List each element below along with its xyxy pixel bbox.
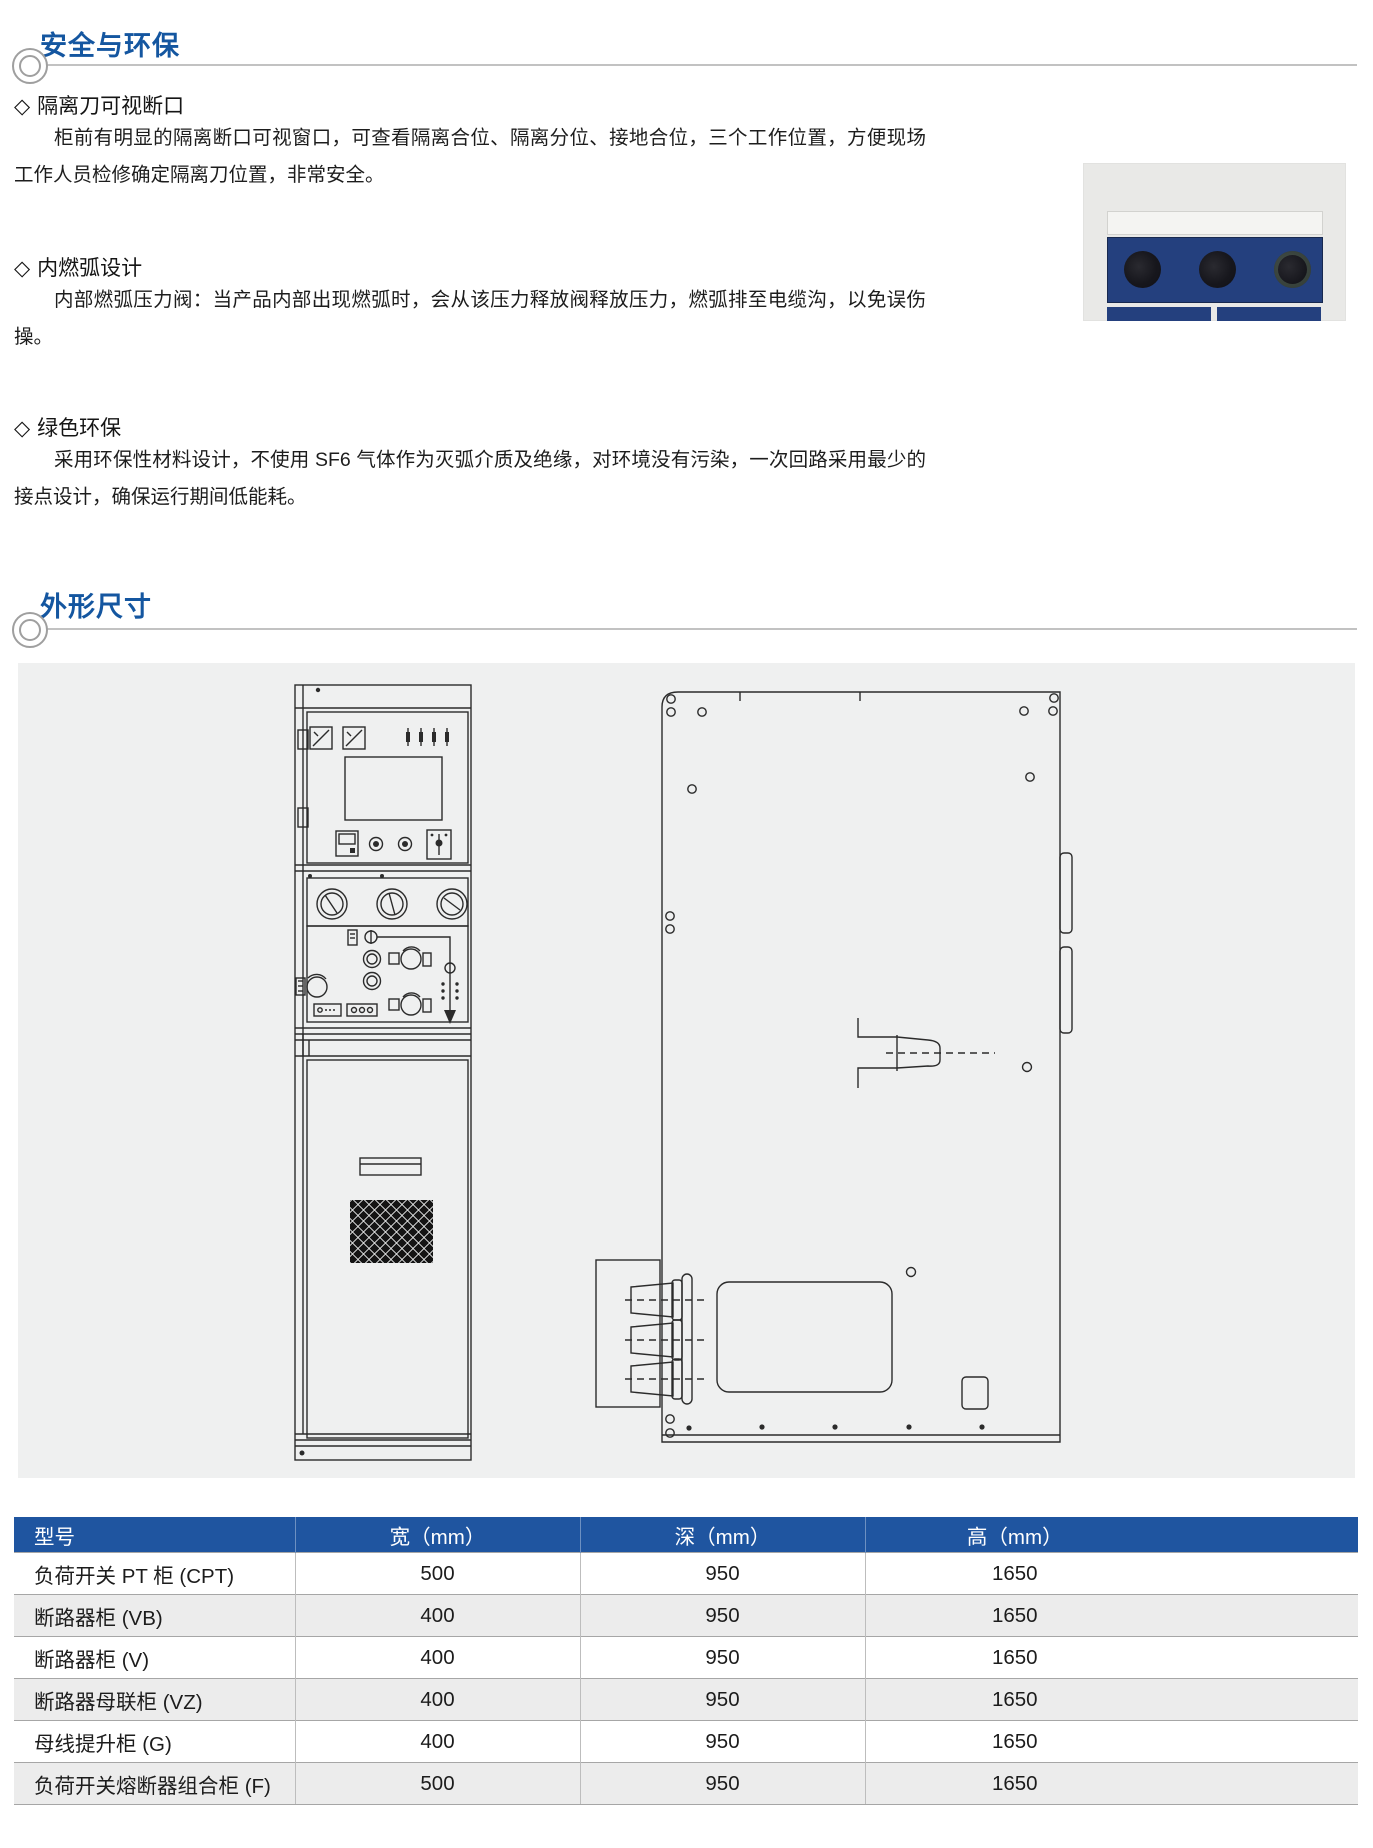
model-cell: 负荷开关 PT 柜 (CPT) (14, 1553, 295, 1595)
dimension-cell: 950 (580, 1763, 865, 1805)
photo-top-strip (1107, 211, 1323, 235)
dimension-cell: 1650 (865, 1637, 1358, 1679)
feature-heading-text: 绿色环保 (37, 417, 121, 440)
section-ring-icon (12, 48, 48, 84)
diamond-icon: ◇ (14, 257, 30, 280)
dimension-cell: 400 (295, 1637, 580, 1679)
feature-heading-text: 内燃弧设计 (37, 257, 142, 280)
feature-heading-arc: ◇内燃弧设计 (14, 252, 142, 282)
cabinet-side-view-drawing (590, 685, 1080, 1455)
table-row: 断路器母联柜 (VZ)4009501650 (14, 1679, 1358, 1721)
feature-body-arc: 内部燃弧压力阀：当产品内部出现燃弧时，会从该压力释放阀释放压力，燃弧排至电缆沟，… (14, 282, 926, 356)
table-row: 断路器柜 (VB)4009501650 (14, 1595, 1358, 1637)
dimension-cell: 950 (580, 1637, 865, 1679)
column-header: 深（mm） (580, 1517, 865, 1553)
diamond-icon: ◇ (14, 95, 30, 118)
dimension-cell: 500 (295, 1763, 580, 1805)
feature-heading-text: 隔离刀可视断口 (37, 95, 184, 118)
viewing-window-icon (1274, 251, 1311, 288)
table-row: 断路器柜 (V)4009501650 (14, 1637, 1358, 1679)
section-rule (28, 628, 1357, 630)
dimension-cell: 950 (580, 1679, 865, 1721)
dimension-cell: 400 (295, 1679, 580, 1721)
dimension-cell: 950 (580, 1595, 865, 1637)
product-photo (1083, 163, 1346, 321)
dimension-cell: 400 (295, 1595, 580, 1637)
section-title-safety: 安全与环保 (40, 24, 180, 63)
dimension-cell: 1650 (865, 1553, 1358, 1595)
column-header: 宽（mm） (295, 1517, 580, 1553)
page: { "ui": { "diamond": "◇" }, "sections": … (0, 0, 1373, 1848)
diamond-icon: ◇ (14, 417, 30, 440)
model-cell: 断路器柜 (VB) (14, 1595, 295, 1637)
size-table-header-row: 型号宽（mm）深（mm）高（mm） (14, 1517, 1358, 1553)
section-ring-icon (12, 612, 48, 648)
dimension-cell: 1650 (865, 1679, 1358, 1721)
dimension-cell: 500 (295, 1553, 580, 1595)
table-row: 负荷开关熔断器组合柜 (F)5009501650 (14, 1763, 1358, 1805)
viewing-window-icon (1124, 251, 1161, 288)
photo-lower-panel-right (1217, 307, 1321, 321)
dimension-cell: 1650 (865, 1721, 1358, 1763)
dimension-cell: 400 (295, 1721, 580, 1763)
column-header: 高（mm） (865, 1517, 1358, 1553)
model-cell: 断路器母联柜 (VZ) (14, 1679, 295, 1721)
model-cell: 负荷开关熔断器组合柜 (F) (14, 1763, 295, 1805)
model-cell: 母线提升柜 (G) (14, 1721, 295, 1763)
dimension-cell: 950 (580, 1721, 865, 1763)
cabinet-front-view-drawing (292, 682, 474, 1464)
dimension-cell: 1650 (865, 1763, 1358, 1805)
dimension-cell: 950 (580, 1553, 865, 1595)
feature-body-green: 采用环保性材料设计，不使用 SF6 气体作为灭弧介质及绝缘，对环境没有污染，一次… (14, 442, 926, 516)
viewing-window-icon (1199, 251, 1236, 288)
photo-lower-panel-left (1107, 307, 1211, 321)
table-row: 负荷开关 PT 柜 (CPT)5009501650 (14, 1553, 1358, 1595)
table-header: 型号宽（mm）深（mm）高（mm） (14, 1517, 1358, 1553)
feature-body-isolation: 柜前有明显的隔离断口可视窗口，可查看隔离合位、隔离分位、接地合位，三个工作位置，… (14, 120, 926, 194)
feature-heading-green: ◇绿色环保 (14, 412, 121, 442)
column-header: 型号 (14, 1517, 295, 1553)
model-cell: 断路器柜 (V) (14, 1637, 295, 1679)
section-rule (28, 64, 1357, 66)
table-row: 母线提升柜 (G)4009501650 (14, 1721, 1358, 1763)
photo-window-panel (1107, 237, 1323, 303)
feature-heading-isolation: ◇隔离刀可视断口 (14, 90, 184, 120)
section-title-dimensions: 外形尺寸 (40, 585, 152, 624)
size-table-body: 负荷开关 PT 柜 (CPT)5009501650断路器柜 (VB)400950… (14, 1553, 1358, 1805)
dimension-cell: 1650 (865, 1595, 1358, 1637)
dimensions-table: 型号宽（mm）深（mm）高（mm） 负荷开关 PT 柜 (CPT)5009501… (14, 1517, 1358, 1805)
